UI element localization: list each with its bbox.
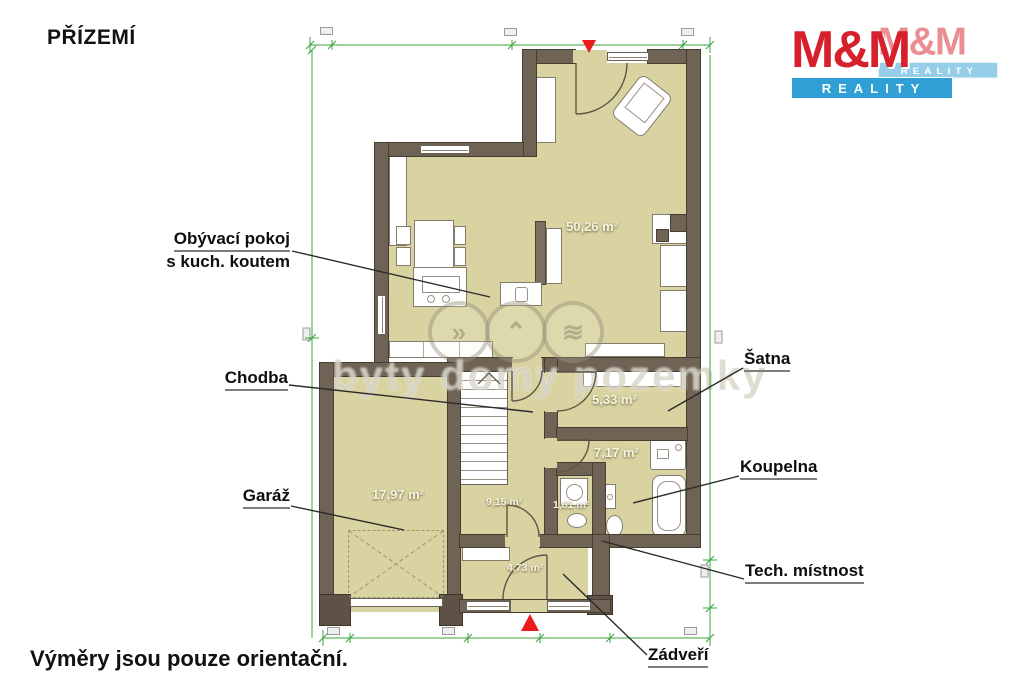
window <box>547 601 591 611</box>
room-fill-living-top <box>536 63 687 163</box>
garage-door <box>350 598 443 607</box>
brand-subtitle: REALITY <box>791 77 953 99</box>
label-zadveri: Zádveří <box>648 645 708 668</box>
door-opening <box>512 358 542 371</box>
dimension-label <box>701 565 709 578</box>
page-title: PŘÍZEMÍ <box>47 26 136 50</box>
area-koupelna: 7,17 m² <box>594 445 639 460</box>
door-opening <box>545 372 557 412</box>
chair <box>454 247 466 266</box>
wall <box>557 463 595 475</box>
area-chodba: 9,15 m² <box>486 496 522 508</box>
area-tech: 1,81 m² <box>553 499 589 511</box>
label-satna: Šatna <box>744 349 790 372</box>
wall <box>320 363 460 376</box>
garage-parking-area <box>348 530 444 598</box>
area-satna: 5,33 m² <box>592 392 637 407</box>
floorplan-page: PŘÍZEMÍ Výměry jsou pouze orientační. M&… <box>0 0 1024 683</box>
dimension-label <box>684 627 697 635</box>
area-living: 50,26 m² <box>566 219 618 234</box>
door-opening <box>511 600 547 612</box>
chair <box>454 226 466 245</box>
label-chodba: Chodba <box>200 368 288 391</box>
fireplace <box>652 214 687 244</box>
tv-bench <box>585 343 665 357</box>
shower <box>650 438 686 470</box>
window <box>466 601 510 611</box>
wall <box>460 535 505 547</box>
kitchen-island <box>413 267 467 307</box>
wall <box>540 535 700 547</box>
kitchen-counter <box>389 341 493 358</box>
dimension-label <box>320 27 333 35</box>
wall-pier <box>320 595 350 625</box>
dimension-label <box>681 28 694 36</box>
wall <box>523 50 536 156</box>
window <box>607 52 649 61</box>
bathtub <box>652 475 686 537</box>
brand-wordmark: M&M <box>791 27 953 75</box>
dining-table <box>414 220 454 268</box>
window <box>420 145 470 154</box>
label-garaz: Garáž <box>220 486 290 509</box>
label-living-room: Obývací pokoj s kuch. koutem <box>160 229 290 271</box>
chair <box>396 226 411 245</box>
area-zadveri: 4,73 m² <box>507 562 543 574</box>
wall <box>542 358 700 371</box>
label-living-line2: s kuch. koutem <box>166 252 290 271</box>
dimension-label <box>327 627 340 635</box>
desk <box>500 282 542 306</box>
label-living-line1: Obývací pokoj <box>174 229 290 252</box>
brand-logo: M&M REALITY <box>791 27 953 99</box>
wall <box>687 50 700 547</box>
dimension-label <box>303 328 311 341</box>
sofa-top <box>536 77 556 143</box>
sofa-right-2 <box>660 290 687 332</box>
boiler <box>567 513 587 528</box>
wall <box>545 412 557 438</box>
dimension-label <box>715 331 723 344</box>
window <box>377 295 386 335</box>
entry-closet <box>462 547 510 561</box>
label-tech-mistnost: Tech. místnost <box>745 561 864 584</box>
wardrobe <box>583 371 682 387</box>
door-opening <box>505 535 540 547</box>
wall <box>557 428 687 440</box>
sofa-right-1 <box>660 245 687 287</box>
entrance-arrow-bottom-icon <box>521 614 539 631</box>
wall <box>320 363 333 625</box>
footer-note: Výměry jsou pouze orientační. <box>30 646 348 672</box>
label-koupelna: Koupelna <box>740 457 817 480</box>
dimension-label <box>504 28 517 36</box>
wall-pier <box>440 595 462 625</box>
staircase <box>460 371 508 485</box>
dimension-label <box>442 627 455 635</box>
chair <box>396 247 411 266</box>
wall <box>545 358 557 372</box>
area-garaz: 17,97 m² <box>372 487 424 502</box>
kitchen-cabinet <box>546 228 562 284</box>
toilet <box>606 515 623 537</box>
wall <box>448 371 460 625</box>
door-opening <box>573 50 607 63</box>
door-opening <box>545 438 557 468</box>
kitchen-panel <box>536 222 545 284</box>
